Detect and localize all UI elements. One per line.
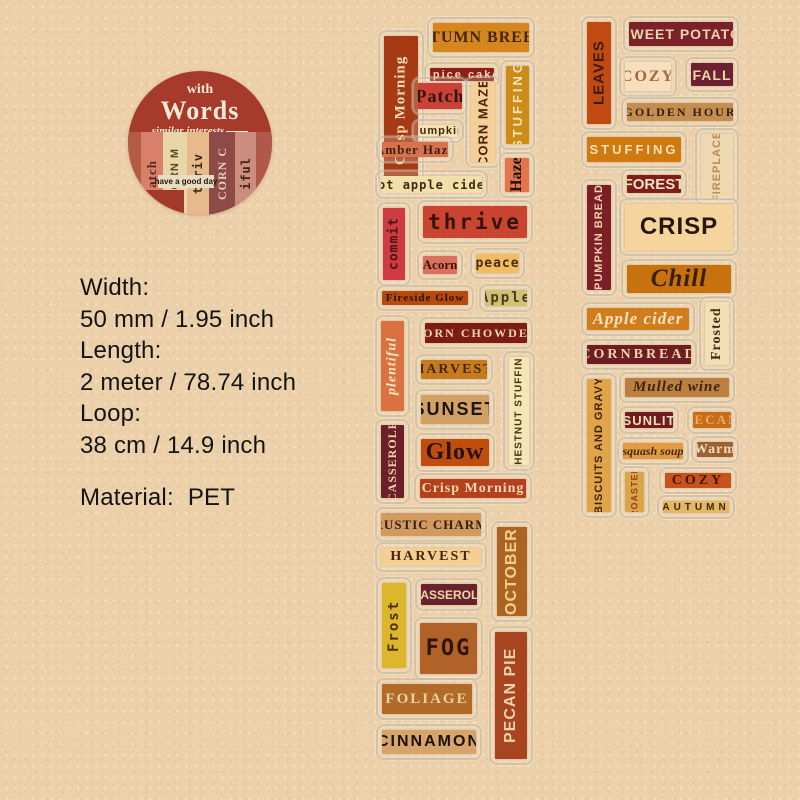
collage-mini-tag: have a good day	[158, 175, 214, 188]
sticker-label-autumn: AUTUMN	[663, 501, 729, 513]
sticker-label-sunlit: SUNLIT	[625, 412, 673, 428]
sticker-sunset: SUNSET	[415, 389, 495, 430]
spec-material-line: Material:PET	[80, 482, 296, 514]
sticker-label-apple-cider: Apple cider	[587, 308, 689, 330]
collage-band-5: iful	[235, 132, 256, 215]
sticker-label-hot-apple-cider: Hot apple cider	[381, 176, 482, 193]
sticker-label-crisp: CRISP	[625, 204, 733, 250]
sticker-label-fireplace-vertical: FIREPLACE	[701, 134, 733, 199]
sticker-apple: Apple	[479, 284, 533, 312]
sticker-pecan-pie-vertical: PECAN PIE	[489, 626, 533, 765]
product-specs: Width: 50 mm / 1.95 inch Length: 2 meter…	[80, 272, 296, 514]
spec-loop-value: 38 cm / 14.9 inch	[80, 430, 296, 462]
sticker-label-thrive: thrive	[423, 206, 527, 238]
sticker-frost-vertical: Frost	[376, 577, 412, 674]
sticker-label-patch: Patch	[418, 83, 462, 109]
sticker-label-crisp-morning-2: Crisp Morning	[420, 479, 526, 498]
sticker-cornbread: CORNBREAD	[581, 339, 697, 370]
sticker-label-leaves-vertical: LEAVES	[587, 22, 611, 124]
sticker-roasted-vertical: ROASTED	[619, 466, 650, 518]
sticker-commit-vertical: commit	[377, 202, 411, 286]
sticker-label-peace: peace	[476, 254, 519, 273]
sticker-label-commit-vertical: commit	[383, 208, 405, 280]
sticker-label-october-vertical: OCTOBER	[497, 527, 527, 616]
sticker-label-frosted-vertical: Frosted	[705, 302, 729, 365]
sticker-label-autumn-breeze: AUTUMN BREEZE	[433, 23, 529, 52]
sticker-hot-apple-cider: Hot apple cider	[375, 170, 488, 199]
sticker-label-biscuits-and-gravy-vertical: BISCUITS AND GRAVY	[587, 379, 611, 512]
sticker-harvest-2: HARVEST	[375, 542, 487, 572]
sticker-thrive: thrive	[417, 200, 533, 244]
product-badge: with Words similar interests atchCORN Mt…	[128, 71, 272, 215]
sticker-leaves-vertical: LEAVES	[581, 16, 617, 130]
sticker-label-roasted-vertical: ROASTED	[625, 472, 644, 512]
sticker-mulled-wine: Mulled wine	[619, 372, 735, 403]
sticker-label-golden-hour: GOLDEN HOUR	[627, 103, 733, 121]
sticker-corn-chowder: CORN CHOWDER	[419, 317, 533, 349]
sticker-label-casserole-1-vertical: CASSEROLE	[381, 425, 404, 498]
sticker-pumpkin-bread-vertical: PUMPKIN BREAD	[581, 179, 617, 296]
badge-big-word: Words	[128, 98, 272, 124]
sticker-harvest-1: HARVEST	[415, 354, 493, 385]
sticker-patch: Patch	[412, 77, 468, 115]
sticker-fall: FALL	[685, 57, 739, 92]
sticker-forest: FOREST	[621, 169, 687, 199]
sticker-apple-cider: Apple cider	[581, 302, 695, 336]
sticker-label-chill: Chill	[627, 265, 731, 293]
sticker-stuffing-2: STUFFING	[581, 131, 687, 168]
sticker-peace: peace	[470, 248, 525, 279]
spec-material-label: Material:	[80, 484, 174, 511]
sticker-label-pumpkin-bread-vertical: PUMPKIN BREAD	[587, 185, 611, 290]
sticker-fireside-glow: Fireside Glow	[376, 285, 474, 311]
sticker-sunlit: SUNLIT	[619, 406, 679, 434]
sticker-label-frost-vertical: Frost	[382, 583, 406, 668]
sticker-label-sunset: SUNSET	[421, 395, 489, 424]
sticker-label-corn-chowder: CORN CHOWDER	[425, 323, 527, 343]
spec-length-label: Length:	[80, 335, 296, 367]
sticker-label-cozy-2: COZY	[665, 473, 731, 488]
sticker-crisp-morning-2: Crisp Morning	[414, 473, 532, 504]
sticker-sweet-potato: SWEET POTATO	[623, 16, 739, 52]
sticker-label-casserole-2: CASSEROLE	[421, 584, 477, 605]
sticker-acorn: Acorn	[417, 250, 463, 280]
sticker-label-stuffing-2: STUFFING	[587, 137, 681, 162]
sticker-cozy-2: COZY	[659, 467, 737, 494]
sticker-crisp: CRISP	[619, 198, 739, 256]
collage-band-4: CORN C	[209, 132, 235, 215]
sticker-chestnut-stuffing-vertical: CHESTNUT STUFFING	[503, 351, 535, 471]
sticker-fireplace-vertical: FIREPLACE	[695, 128, 739, 205]
collage-band-3: thriv	[187, 132, 209, 215]
sticker-label-acorn: Acorn	[423, 256, 457, 274]
sticker-label-squash-soup: squash soup	[623, 443, 683, 459]
sticker-label-cornbread: CORNBREAD	[587, 345, 691, 364]
sticker-squash-soup: squash soup	[617, 437, 689, 465]
sticker-label-rustic-charm: RUSTIC CHARM	[381, 513, 481, 536]
collage-word-5: iful	[239, 157, 253, 190]
sticker-label-haze-vertical: Haze	[505, 158, 529, 192]
spec-loop-label: Loop:	[80, 398, 296, 430]
sticker-label-harvest-2: HARVEST	[381, 548, 481, 566]
sticker-rustic-charm: RUSTIC CHARM	[375, 507, 487, 542]
collage-red-patch	[128, 190, 184, 215]
sticker-label-pecan-pie-vertical: PECAN PIE	[495, 632, 527, 759]
sticker-label-pecan: PECAN	[693, 412, 731, 428]
sticker-label-glow: Glow	[421, 439, 489, 466]
sticker-casserole-1-vertical: CASSEROLE	[375, 419, 410, 504]
sticker-label-mulled-wine: Mulled wine	[625, 378, 729, 397]
sticker-cozy-1: COZY	[619, 56, 677, 97]
sticker-label-stuffing-vertical: STUFFING	[506, 66, 529, 144]
spec-material-value: PET	[188, 484, 235, 511]
sticker-label-plentiful-vertical: plentiful	[381, 321, 404, 411]
sticker-golden-hour: GOLDEN HOUR	[621, 97, 739, 127]
sticker-stuffing-vertical: STUFFING	[500, 60, 535, 150]
sticker-fog: FOG	[414, 617, 483, 680]
sticker-label-fireside-glow: Fireside Glow	[382, 291, 468, 305]
sticker-casserole-2: CASSEROLE	[415, 578, 483, 611]
sticker-label-foliage: FOLIAGE	[382, 684, 472, 714]
sticker-corn-maze-vertical: CORN MAZE	[465, 76, 501, 168]
sticker-foliage: FOLIAGE	[376, 678, 478, 720]
sticker-glow: Glow	[415, 433, 495, 472]
spec-width-value: 50 mm / 1.95 inch	[80, 304, 296, 336]
sticker-label-sweet-potato: SWEET POTATO	[629, 22, 733, 46]
sticker-label-warm: Warm	[697, 442, 733, 457]
sticker-haze-vertical: Haze	[499, 152, 535, 198]
sticker-label-fall: FALL	[691, 63, 733, 86]
sticker-label-forest: FOREST	[627, 175, 681, 193]
collage-band-6	[256, 132, 272, 215]
sticker-label-harvest-1: HARVEST	[421, 360, 487, 379]
sticker-plentiful-vertical: plentiful	[375, 315, 410, 417]
sticker-october-vertical: OCTOBER	[491, 521, 533, 622]
sticker-label-fog: FOG	[420, 623, 477, 674]
sticker-chill: Chill	[621, 259, 737, 299]
sticker-warm: Warm	[691, 436, 739, 463]
sticker-autumn: AUTUMN	[657, 495, 735, 519]
sticker-cinnamon: CINNAMON	[376, 724, 482, 760]
sticker-label-cozy-1: COZY	[625, 62, 671, 91]
sticker-label-corn-maze-vertical: CORN MAZE	[471, 82, 495, 162]
sticker-amber-haze: Amber Haze	[376, 136, 454, 163]
sticker-label-amber-haze: Amber Haze	[382, 142, 448, 157]
sticker-pecan: PECAN	[687, 406, 737, 434]
sticker-frosted-vertical: Frosted	[699, 296, 735, 371]
sticker-autumn-breeze: AUTUMN BREEZE	[427, 17, 535, 58]
sticker-label-apple: Apple	[485, 290, 527, 306]
collage-word-4: CORN C	[215, 147, 230, 200]
spec-width-label: Width:	[80, 272, 296, 304]
sticker-label-cinnamon: CINNAMON	[382, 730, 476, 754]
sticker-biscuits-and-gravy-vertical: BISCUITS AND GRAVY	[581, 373, 617, 518]
spec-length-value: 2 meter / 78.74 inch	[80, 367, 296, 399]
sticker-label-chestnut-stuffing-vertical: CHESTNUT STUFFING	[509, 357, 529, 465]
